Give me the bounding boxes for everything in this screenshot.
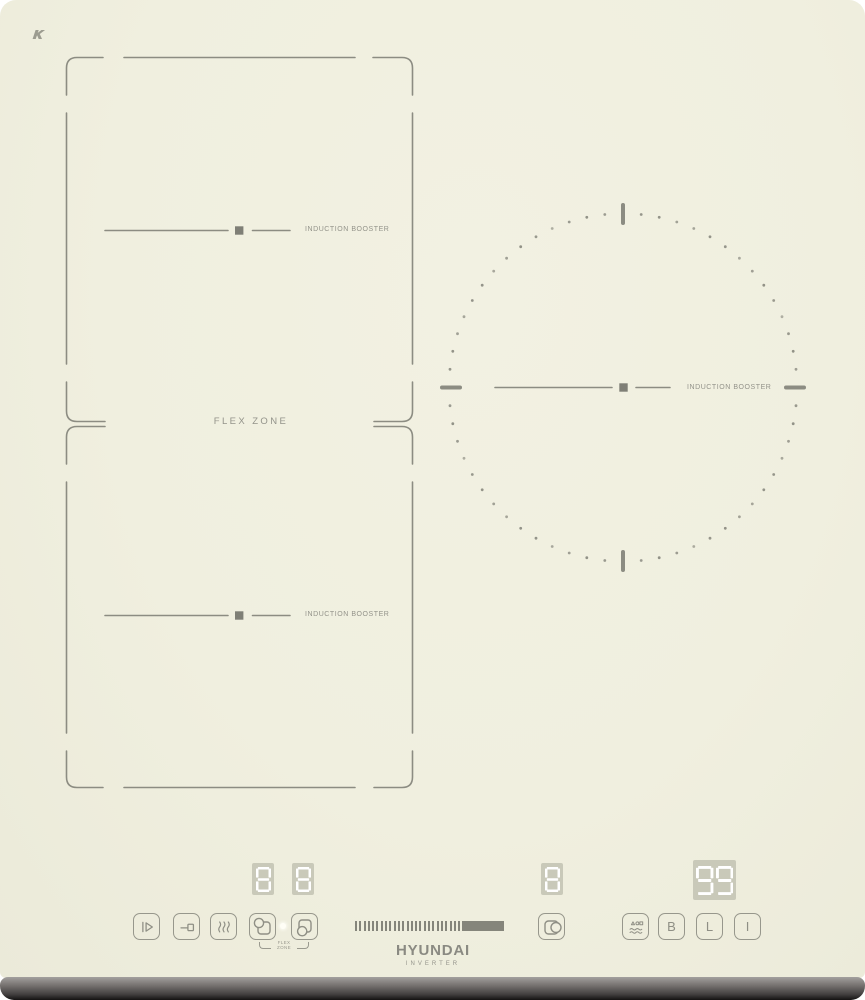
booster-label-upper: INDUCTION BOOSTER [305,226,389,233]
booster-label-lower: INDUCTION BOOSTER [305,611,389,618]
slider-level-bar [462,921,504,931]
bracket-left-hook [259,942,271,949]
timer-start-icon [136,916,158,938]
display-flex-lower [292,863,314,895]
lock-button-label: L [706,920,713,933]
zone-linework [0,0,865,977]
brand-subline: INVERTER [363,961,503,967]
brand-block: HYUNDAI INVERTER [363,942,503,967]
flex-zone-lower-outline [67,427,413,788]
slider-ticks [355,921,460,931]
power-slider[interactable] [355,920,505,931]
flex-zone-upper-outline [67,58,413,422]
display-right-zone [541,863,563,895]
flex-upper-zone-icon [251,915,275,939]
display-timer [693,860,736,900]
melt-keep-warm-icon [625,916,647,938]
power-button[interactable]: I [734,913,761,940]
lock-button[interactable]: L [696,913,723,940]
right-zone-icon [540,915,564,939]
flex-zone-label: FLEX ZONE [191,416,311,427]
bracket-right-hook [297,942,309,949]
keep-warm-button[interactable] [210,913,237,940]
booster-button-label: B [667,920,676,933]
pause-button[interactable] [173,913,200,940]
flex-lower-zone-icon [293,915,317,939]
flex-upper-select-button[interactable] [249,913,276,940]
display-flex-upper [252,863,274,895]
booster-button[interactable]: B [658,913,685,940]
steam-icon [213,916,235,938]
front-edge-strip [0,977,865,1000]
brand-name: HYUNDAI [363,942,503,959]
flex-lower-select-button[interactable] [291,913,318,940]
cooktop-product-image: K [0,0,865,1000]
power-button-label: I [746,920,750,933]
flex-bracket-label-2: ZONE [277,945,291,950]
booster-line-right [495,383,670,391]
booster-line-lower [105,611,290,619]
pause-icon [176,916,198,938]
melt-keep-warm-button[interactable] [622,913,649,940]
booster-label-right: INDUCTION BOOSTER [687,384,771,391]
flex-zone-led [280,923,286,929]
timer-button[interactable] [133,913,160,940]
flex-zone-bracket: FLEX ZONE [259,939,309,949]
right-zone-select-button[interactable] [538,913,565,940]
booster-line-upper [105,226,290,234]
